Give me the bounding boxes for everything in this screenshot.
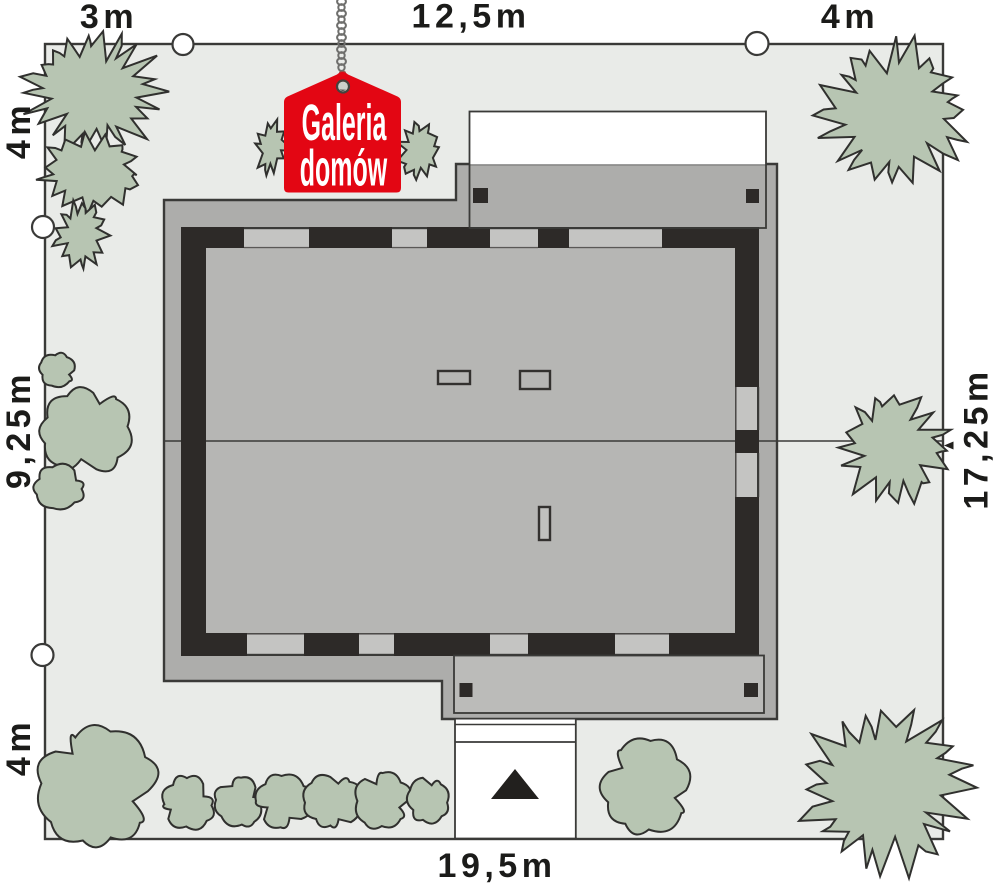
svg-text:4m: 4m <box>821 0 879 36</box>
svg-text:19,5m: 19,5m <box>438 847 557 885</box>
svg-text:4m: 4m <box>0 101 38 159</box>
svg-text:12,5m: 12,5m <box>412 0 531 36</box>
svg-text:domów: domów <box>300 140 388 197</box>
svg-text:3m: 3m <box>80 0 138 36</box>
svg-text:9,25m: 9,25m <box>0 370 38 489</box>
svg-text:17,25m: 17,25m <box>958 367 995 509</box>
svg-text:4m: 4m <box>0 718 38 776</box>
